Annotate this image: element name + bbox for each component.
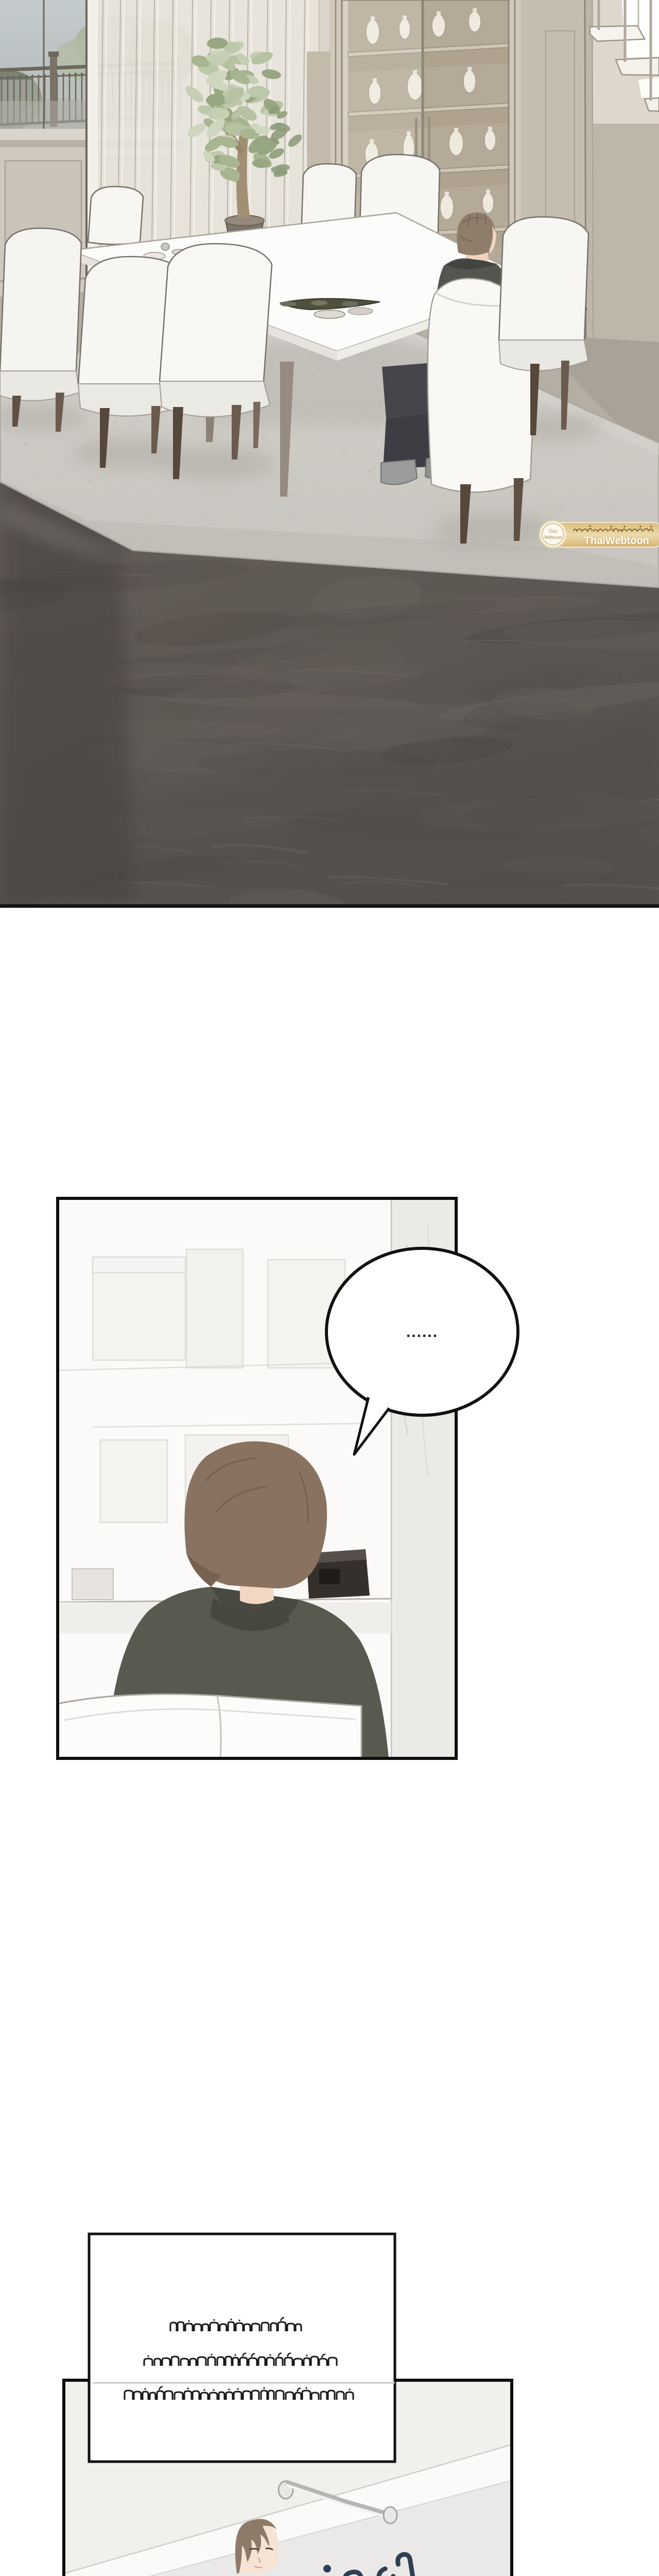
svg-text:Thai: Thai — [549, 529, 558, 534]
svg-text:......: ...... — [406, 1324, 438, 1341]
svg-text:Webtoon: Webtoon — [544, 535, 562, 540]
svg-text:ThaiWebtoon: ThaiWebtoon — [584, 535, 649, 547]
